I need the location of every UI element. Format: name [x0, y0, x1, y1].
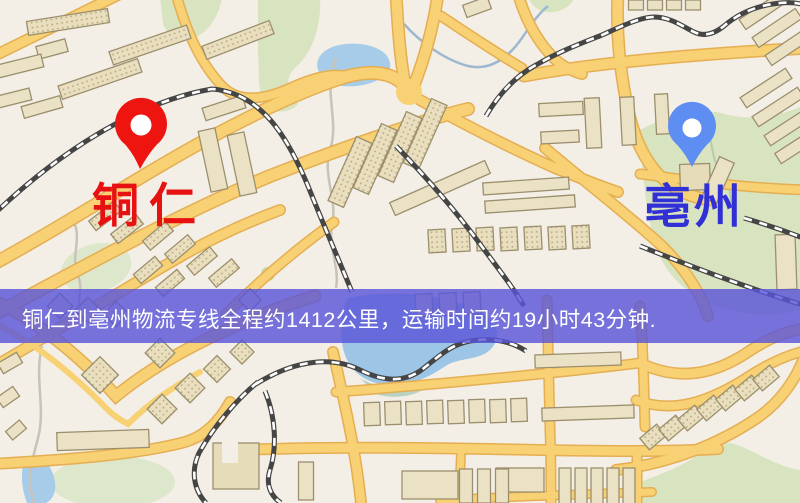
map-canvas: 铜仁到亳州物流专线全程约1412公里，运输时间约19小时43分钟. 铜仁 亳州	[0, 0, 800, 503]
destination-pin-hole	[683, 119, 702, 138]
origin-pin-hole	[131, 115, 152, 136]
route-info-banner: 铜仁到亳州物流专线全程约1412公里，运输时间约19小时43分钟.	[0, 289, 800, 343]
origin-city-label: 铜仁	[92, 179, 206, 232]
route-map: 铜仁到亳州物流专线全程约1412公里，运输时间约19小时43分钟. 铜仁 亳州	[0, 0, 800, 503]
route-info-text: 铜仁到亳州物流专线全程约1412公里，运输时间约19小时43分钟.	[22, 308, 656, 332]
destination-city-label: 亳州	[644, 180, 744, 233]
